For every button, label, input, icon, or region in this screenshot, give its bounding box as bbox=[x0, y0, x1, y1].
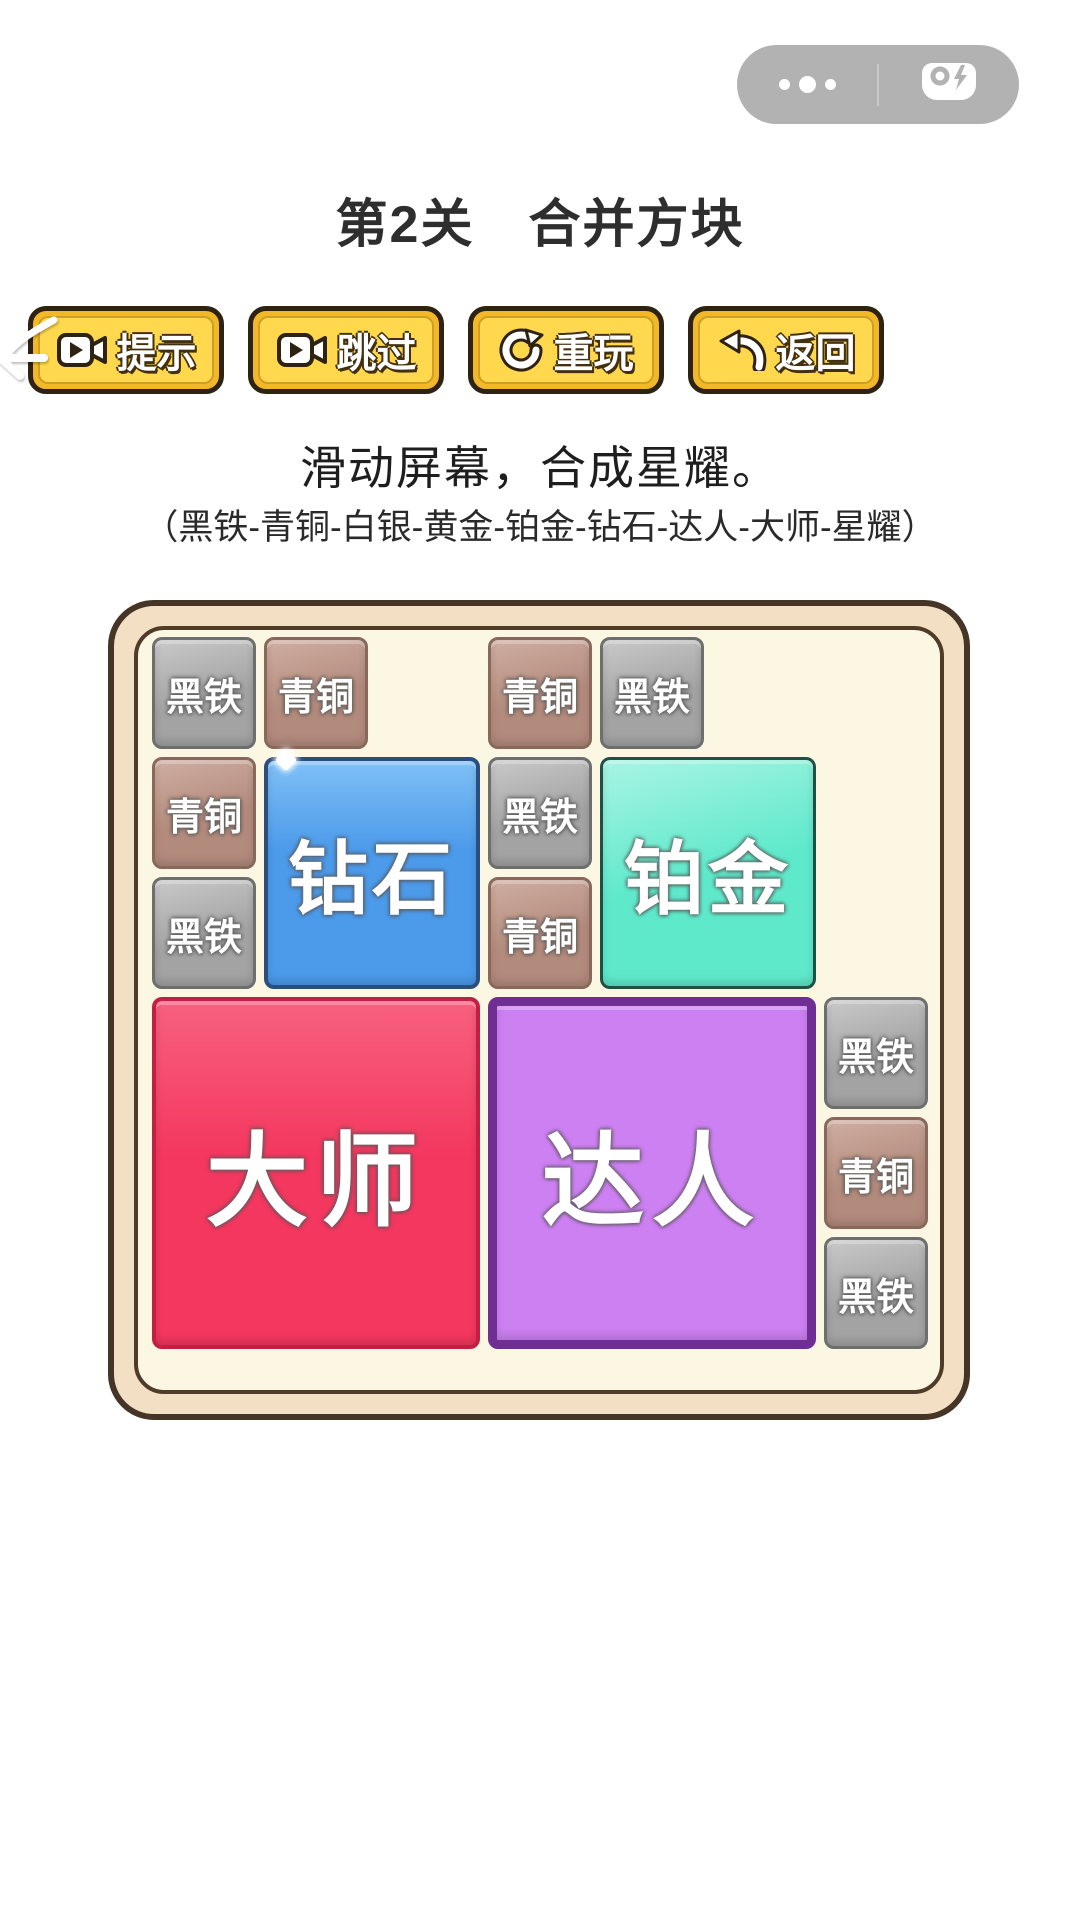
block-iron[interactable]: 黑铁 bbox=[600, 637, 704, 749]
block-label: 青铜 bbox=[838, 1146, 914, 1201]
block-iron[interactable]: 黑铁 bbox=[152, 877, 256, 989]
swipe-hint-arrow-icon bbox=[0, 312, 58, 401]
page-title: 第2关 合并方块 bbox=[0, 182, 1080, 257]
back-button[interactable]: 返回 bbox=[688, 306, 884, 394]
block-expert[interactable]: 达人 bbox=[488, 997, 816, 1349]
blocks-layer: 黑铁青铜青铜黑铁青铜钻石黑铁铂金黑铁青铜大师达人黑铁青铜黑铁 bbox=[114, 606, 964, 1414]
more-dots-icon bbox=[799, 76, 816, 93]
toolbar: 提示 跳过 重玩 返回 bbox=[28, 306, 884, 394]
more-dots-icon bbox=[779, 79, 790, 90]
refresh-icon bbox=[499, 328, 545, 372]
block-label: 钻石 bbox=[288, 815, 456, 931]
block-label: 达人 bbox=[542, 1100, 762, 1247]
block-iron[interactable]: 黑铁 bbox=[824, 1237, 928, 1349]
replay-button[interactable]: 重玩 bbox=[468, 306, 664, 394]
video-ad-icon bbox=[276, 330, 328, 370]
game-board[interactable]: 黑铁青铜青铜黑铁青铜钻石黑铁铂金黑铁青铜大师达人黑铁青铜黑铁 bbox=[108, 600, 970, 1420]
block-bronze[interactable]: 青铜 bbox=[152, 757, 256, 869]
block-label: 黑铁 bbox=[838, 1266, 914, 1321]
block-bronze[interactable]: 青铜 bbox=[824, 1117, 928, 1229]
block-master[interactable]: 大师 bbox=[152, 997, 480, 1349]
block-iron[interactable]: 黑铁 bbox=[488, 757, 592, 869]
block-label: 黑铁 bbox=[166, 666, 242, 721]
rank-order-text: （黑铁-青铜-白银-黄金-铂金-钻石-达人-大师-星耀） bbox=[0, 499, 1080, 550]
instruction-text: 滑动屏幕，合成星耀。 bbox=[0, 432, 1080, 498]
game-center-button[interactable] bbox=[879, 45, 1019, 124]
wechat-capsule bbox=[737, 45, 1019, 124]
hint-button-label: 提示 bbox=[117, 321, 197, 379]
back-button-label: 返回 bbox=[776, 321, 856, 379]
block-bronze[interactable]: 青铜 bbox=[488, 637, 592, 749]
block-label: 青铜 bbox=[278, 666, 354, 721]
back-arrow-icon bbox=[717, 329, 767, 371]
block-label: 大师 bbox=[206, 1100, 426, 1247]
more-button[interactable] bbox=[737, 45, 877, 124]
block-diamond[interactable]: 钻石 bbox=[264, 757, 480, 989]
block-iron[interactable]: 黑铁 bbox=[824, 997, 928, 1109]
block-label: 黑铁 bbox=[166, 906, 242, 961]
block-label: 黑铁 bbox=[838, 1026, 914, 1081]
video-ad-icon bbox=[56, 330, 108, 370]
block-platinum[interactable]: 铂金 bbox=[600, 757, 816, 989]
block-bronze[interactable]: 青铜 bbox=[488, 877, 592, 989]
block-iron[interactable]: 黑铁 bbox=[152, 637, 256, 749]
gamepad-icon bbox=[918, 59, 980, 110]
block-bronze[interactable]: 青铜 bbox=[264, 637, 368, 749]
block-label: 青铜 bbox=[166, 786, 242, 841]
block-label: 铂金 bbox=[624, 815, 792, 931]
more-dots-icon bbox=[825, 79, 836, 90]
skip-button-label: 跳过 bbox=[337, 321, 417, 379]
block-label: 青铜 bbox=[502, 906, 578, 961]
skip-button[interactable]: 跳过 bbox=[248, 306, 444, 394]
block-label: 黑铁 bbox=[614, 666, 690, 721]
block-label: 青铜 bbox=[502, 666, 578, 721]
block-label: 黑铁 bbox=[502, 786, 578, 841]
replay-button-label: 重玩 bbox=[554, 321, 634, 379]
